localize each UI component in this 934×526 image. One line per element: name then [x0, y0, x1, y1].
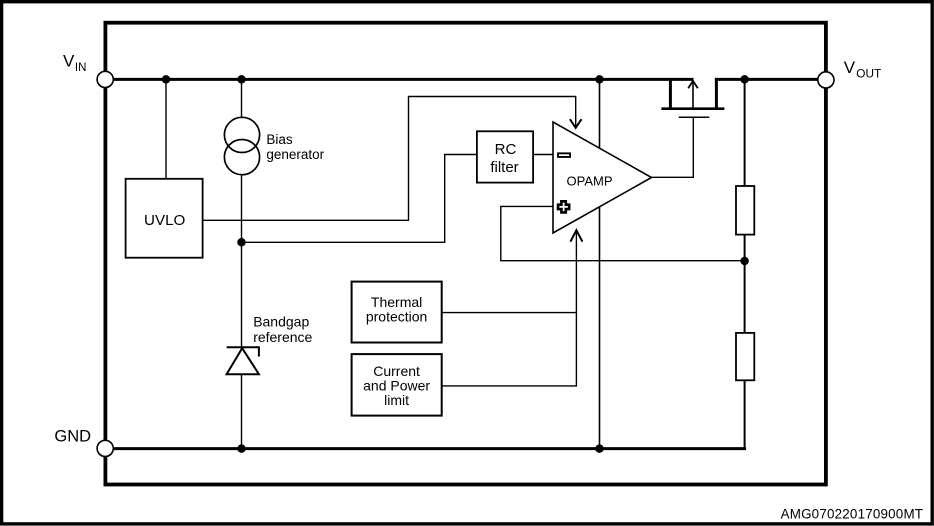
- svg-text:Bias: Bias: [266, 132, 293, 147]
- svg-text:RC: RC: [495, 141, 517, 158]
- svg-text:V: V: [844, 58, 856, 77]
- svg-text:Thermal: Thermal: [371, 294, 422, 310]
- svg-text:GND: GND: [54, 427, 91, 445]
- svg-text:OUT: OUT: [856, 67, 881, 81]
- svg-text:AMG070220170900MT: AMG070220170900MT: [781, 506, 924, 521]
- svg-text:protection: protection: [366, 308, 427, 324]
- svg-text:reference: reference: [253, 329, 312, 345]
- svg-text:V: V: [63, 52, 75, 71]
- svg-text:filter: filter: [490, 159, 518, 176]
- svg-text:and Power: and Power: [363, 377, 430, 393]
- svg-text:IN: IN: [75, 62, 87, 74]
- svg-text:OPAMP: OPAMP: [567, 173, 613, 188]
- svg-text:Bandgap: Bandgap: [253, 313, 309, 329]
- svg-text:UVLO: UVLO: [144, 212, 186, 229]
- svg-text:limit: limit: [384, 392, 409, 408]
- svg-text:generator: generator: [266, 147, 324, 162]
